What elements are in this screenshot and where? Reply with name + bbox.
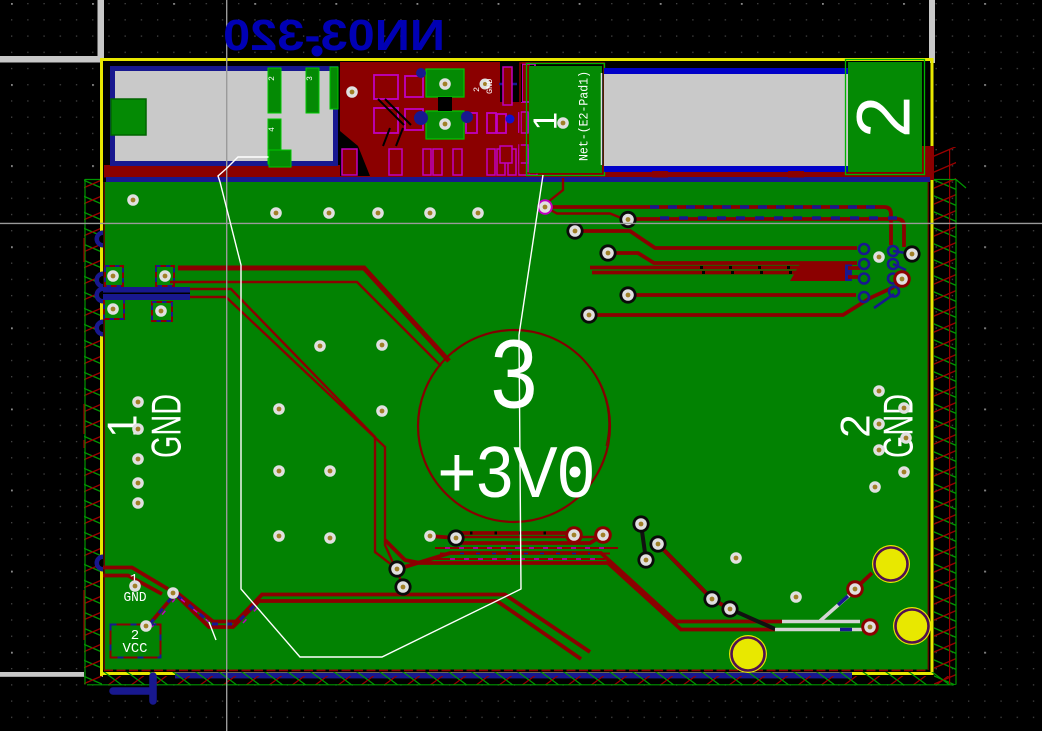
- svg-text:2: 2: [472, 87, 482, 92]
- svg-text:4: 4: [268, 127, 277, 132]
- svg-text:2: 2: [832, 414, 879, 437]
- svg-text:GND: GND: [485, 79, 495, 94]
- svg-text:GND: GND: [124, 590, 147, 606]
- svg-text:3: 3: [306, 76, 315, 81]
- svg-text:VCC: VCC: [123, 641, 148, 657]
- svg-text:NN03-320: NN03-320: [223, 11, 445, 60]
- svg-text:Net-(E2-Pad1): Net-(E2-Pad1): [577, 71, 592, 161]
- svg-text:GND: GND: [143, 394, 190, 458]
- svg-text:2: 2: [268, 76, 277, 81]
- svg-text:3: 3: [491, 320, 538, 429]
- svg-text:2: 2: [842, 96, 927, 138]
